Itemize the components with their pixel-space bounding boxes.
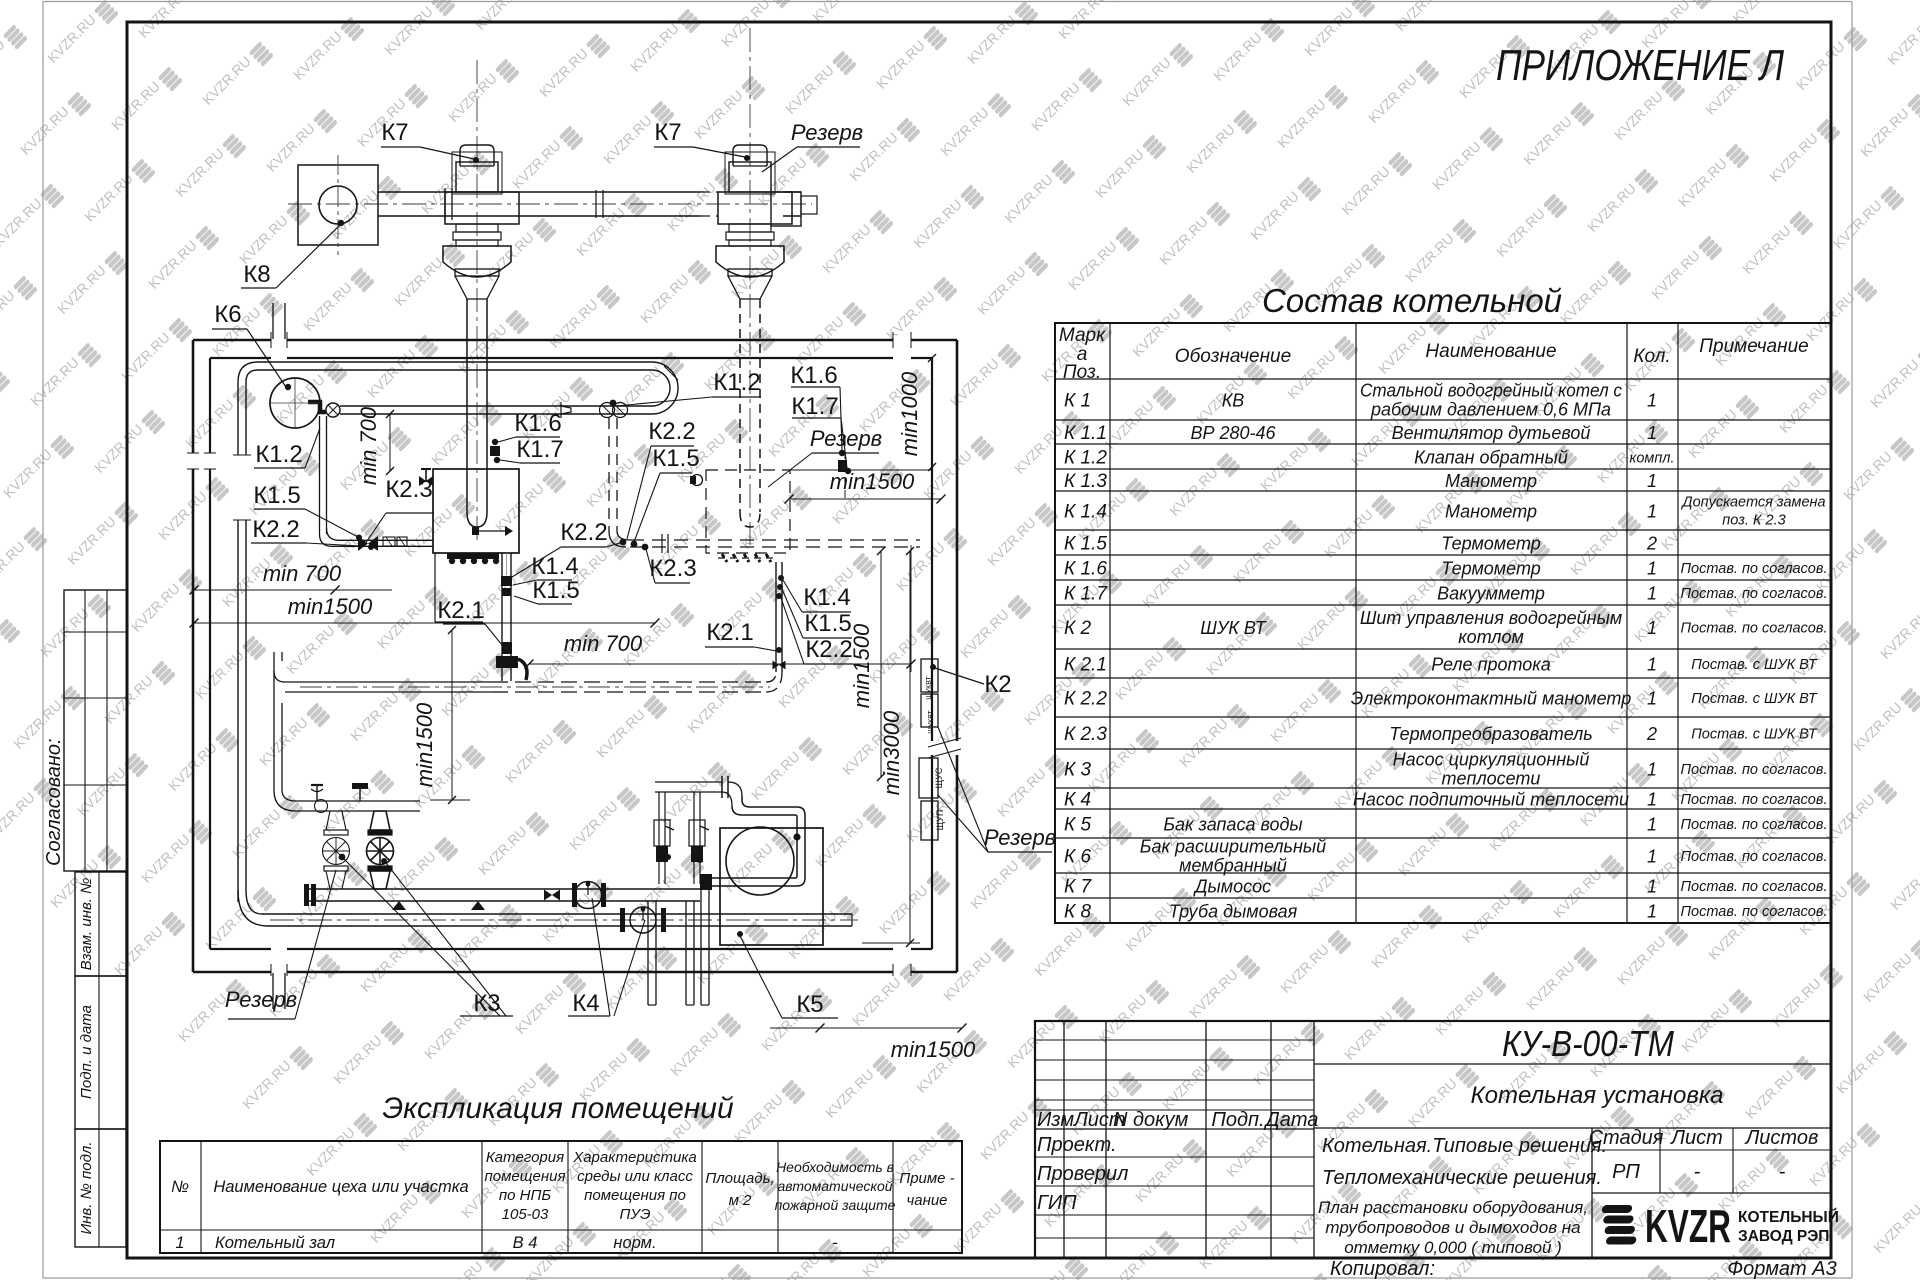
svg-text:К2: К2	[984, 671, 1011, 698]
svg-text:КВ: КВ	[1222, 391, 1245, 411]
svg-text:Постав. с ШУК ВТ: Постав. с ШУК ВТ	[1691, 727, 1818, 743]
svg-text:Клапан обратный: Клапан обратный	[1414, 448, 1568, 468]
svg-text:Формат А3: Формат А3	[1727, 1258, 1836, 1280]
svg-text:1: 1	[1647, 391, 1657, 411]
svg-text:К1.7: К1.7	[791, 393, 838, 420]
svg-text:К7: К7	[654, 119, 681, 146]
svg-text:1: 1	[1647, 877, 1657, 897]
svg-text:Манометр: Манометр	[1445, 471, 1537, 491]
svg-text:К1.6: К1.6	[514, 410, 561, 437]
svg-text:Термопреобразователь: Термопреобразователь	[1389, 724, 1592, 744]
svg-text:Наименование: Наименование	[1425, 341, 1556, 362]
svg-text:пожарной защите: пожарной защите	[775, 1197, 896, 1213]
svg-text:Бак расширительный: Бак расширительный	[1140, 837, 1326, 857]
svg-text:105-03: 105-03	[502, 1206, 549, 1223]
svg-text:К1.4: К1.4	[531, 553, 578, 580]
svg-text:min1500: min1500	[849, 623, 874, 708]
svg-text:min1500: min1500	[412, 702, 437, 787]
svg-text:рабочим давлением 0,6 МПа: рабочим давлением 0,6 МПа	[1370, 400, 1611, 420]
svg-text:Электроконтактный манометр: Электроконтактный манометр	[1351, 689, 1631, 709]
svg-text:К1.5: К1.5	[253, 482, 300, 509]
svg-text:Постав. по согласов.: Постав. по согласов.	[1681, 904, 1828, 920]
svg-text:Постав. с ШУК ВТ: Постав. с ШУК ВТ	[1691, 691, 1818, 707]
svg-text:1: 1	[1647, 689, 1657, 709]
svg-text:Категория: Категория	[486, 1149, 564, 1166]
svg-text:К 8: К 8	[1064, 902, 1091, 923]
svg-text:помещения: помещения	[485, 1168, 566, 1185]
svg-text:План расстановки оборудования,: План расстановки оборудования,	[1318, 1198, 1588, 1217]
svg-text:автоматической: автоматической	[777, 1178, 892, 1194]
svg-text:компл.: компл.	[1629, 451, 1674, 467]
svg-text:min 700: min 700	[564, 631, 643, 656]
svg-text:по НПБ: по НПБ	[499, 1187, 551, 1204]
svg-text:Проверил: Проверил	[1037, 1163, 1128, 1185]
svg-text:К1.6: К1.6	[790, 362, 837, 389]
svg-text:ШУКВТ: ШУКВТ	[928, 710, 935, 734]
svg-text:Подп. и дата: Подп. и дата	[78, 1005, 95, 1099]
svg-text:Котельная.Типовые решения.: Котельная.Типовые решения.	[1322, 1135, 1607, 1157]
svg-text:Необходимость в: Необходимость в	[776, 1159, 894, 1175]
svg-text:Взам. инв. №: Взам. инв. №	[78, 878, 95, 971]
svg-text:К8: К8	[243, 261, 270, 288]
svg-text:Термометр: Термометр	[1441, 534, 1541, 554]
svg-text:Манометр: Манометр	[1445, 502, 1537, 522]
svg-text:Лист: Лист	[1669, 1127, 1723, 1149]
svg-text:среды или класс: среды или класс	[577, 1168, 693, 1185]
svg-text:Проект.: Проект.	[1037, 1134, 1117, 1156]
svg-text:ПУЭ: ПУЭ	[619, 1206, 650, 1223]
svg-text:норм.: норм.	[613, 1234, 656, 1252]
svg-text:Наименование цеха или участка: Наименование цеха или участка	[213, 1178, 468, 1196]
svg-text:Постав. по согласов.: Постав. по согласов.	[1681, 586, 1828, 602]
svg-text:помещения по: помещения по	[584, 1187, 686, 1204]
svg-text:Состав котельной: Состав котельной	[1262, 282, 1562, 319]
svg-text:Постав. по согласов.: Постав. по согласов.	[1681, 792, 1828, 808]
svg-text:КУ-В-00-ТМ: КУ-В-00-ТМ	[1502, 1023, 1674, 1064]
svg-text:Характеристика: Характеристика	[572, 1149, 697, 1166]
svg-text:Постав. по согласов.: Постав. по согласов.	[1681, 879, 1828, 895]
svg-text:К1.2: К1.2	[713, 369, 760, 396]
svg-text:-: -	[1694, 1161, 1701, 1183]
svg-text:К2.1: К2.1	[706, 619, 753, 646]
svg-text:К2.3: К2.3	[385, 476, 432, 503]
svg-text:К2.2: К2.2	[252, 516, 299, 543]
svg-text:ШУК ВТ: ШУК ВТ	[1200, 618, 1267, 638]
svg-text:К 1: К 1	[1064, 391, 1091, 412]
svg-text:№: №	[171, 1178, 189, 1196]
svg-text:Бак запаса воды: Бак запаса воды	[1163, 815, 1302, 835]
svg-text:Постав. по согласов.: Постав. по согласов.	[1681, 849, 1828, 865]
svg-text:К 2: К 2	[1064, 618, 1091, 639]
svg-text:К4: К4	[572, 990, 599, 1017]
svg-text:К1.4: К1.4	[803, 584, 850, 611]
svg-text:1: 1	[1647, 618, 1657, 638]
svg-text:Шит управления водогрейным: Шит управления водогрейным	[1360, 608, 1622, 628]
svg-text:Листов: Листов	[1744, 1127, 1819, 1149]
svg-text:1: 1	[1647, 584, 1657, 604]
svg-text:котлом: котлом	[1458, 627, 1524, 647]
svg-text:Постав. по согласов.: Постав. по согласов.	[1681, 817, 1828, 833]
svg-text:Резерв: Резерв	[984, 825, 1056, 850]
svg-text:Котельная установка: Котельная установка	[1470, 1082, 1723, 1109]
svg-text:К 1.1: К 1.1	[1064, 423, 1107, 444]
svg-text:Реле протока: Реле протока	[1431, 655, 1551, 675]
svg-text:Тепломеханические решения.: Тепломеханические решения.	[1322, 1167, 1602, 1189]
svg-text:Дымосос: Дымосос	[1193, 877, 1271, 897]
svg-text:В 4: В 4	[513, 1234, 538, 1252]
svg-text:min 700: min 700	[263, 561, 342, 586]
svg-text:трубопроводов и дымоходов на: трубопроводов и дымоходов на	[1325, 1218, 1580, 1237]
svg-text:1: 1	[1647, 790, 1657, 810]
svg-text:ЩУС: ЩУС	[934, 767, 944, 788]
svg-text:Примечание: Примечание	[1699, 336, 1808, 357]
svg-text:Резерв: Резерв	[810, 426, 882, 451]
svg-text:min1500: min1500	[891, 1037, 976, 1062]
svg-text:ПРИЛОЖЕНИЕ Л: ПРИЛОЖЕНИЕ Л	[1496, 41, 1785, 90]
svg-text:Экспликация помещений: Экспликация помещений	[382, 1092, 734, 1125]
svg-text:РП: РП	[1612, 1161, 1640, 1183]
svg-text:Копировал:: Копировал:	[1330, 1258, 1435, 1280]
svg-text:мембранный: мембранный	[1179, 856, 1287, 876]
svg-text:Вентилятор дутьевой: Вентилятор дутьевой	[1392, 423, 1591, 443]
svg-text:Постав. по согласов.: Постав. по согласов.	[1681, 762, 1828, 778]
svg-text:Резерв: Резерв	[225, 987, 297, 1012]
svg-text:К1.5: К1.5	[804, 610, 851, 637]
svg-text:Насос циркуляционный: Насос циркуляционный	[1393, 750, 1590, 770]
svg-text:КОТЕЛЬНЫЙ: КОТЕЛЬНЫЙ	[1738, 1208, 1839, 1226]
svg-text:Котельный зал: Котельный зал	[215, 1234, 335, 1252]
svg-text:2: 2	[1646, 724, 1657, 744]
svg-text:К 1.2: К 1.2	[1064, 448, 1107, 469]
svg-text:ВР 280-46: ВР 280-46	[1190, 423, 1276, 443]
svg-text:К2.2: К2.2	[648, 418, 695, 445]
svg-text:К 2.3: К 2.3	[1064, 724, 1107, 745]
svg-text:К1.2: К1.2	[255, 441, 302, 468]
svg-text:Марк: Марк	[1059, 325, 1106, 346]
svg-text:К 1.5: К 1.5	[1064, 534, 1107, 555]
svg-text:К1.5: К1.5	[532, 577, 579, 604]
svg-text:К2.2: К2.2	[805, 636, 852, 663]
svg-text:К1.7: К1.7	[516, 436, 563, 463]
svg-text:Площадь,: Площадь,	[705, 1170, 774, 1187]
svg-text:1: 1	[1647, 847, 1657, 867]
svg-text:К 1.4: К 1.4	[1064, 502, 1107, 523]
svg-text:Поз.: Поз.	[1063, 362, 1101, 383]
svg-text:ГИП: ГИП	[1037, 1192, 1077, 1214]
svg-text:KVZR: KVZR	[1645, 1200, 1731, 1252]
svg-text:Вакуумметр: Вакуумметр	[1437, 584, 1545, 604]
svg-text:Дата: Дата	[1264, 1109, 1319, 1131]
svg-text:поз. К 2.3: поз. К 2.3	[1722, 513, 1785, 529]
svg-text:ЩУП: ЩУП	[935, 810, 945, 831]
svg-text:К 1.6: К 1.6	[1064, 559, 1107, 580]
svg-text:К 4: К 4	[1064, 790, 1091, 811]
svg-text:К 6: К 6	[1064, 847, 1091, 868]
svg-text:1: 1	[1647, 760, 1657, 780]
svg-text:2: 2	[1646, 534, 1657, 554]
svg-text:-: -	[1779, 1161, 1786, 1183]
svg-text:1: 1	[1647, 471, 1657, 491]
svg-text:К7: К7	[381, 119, 408, 146]
svg-text:min1500: min1500	[830, 469, 915, 494]
svg-text:Постав. по согласов.: Постав. по согласов.	[1681, 561, 1828, 577]
svg-text:теплосети: теплосети	[1442, 769, 1541, 789]
svg-text:N докум: N докум	[1113, 1109, 1189, 1131]
svg-text:К6: К6	[214, 301, 241, 328]
svg-text:К 1.7: К 1.7	[1064, 584, 1108, 605]
svg-text:К1.5: К1.5	[652, 445, 699, 472]
svg-text:1: 1	[1647, 502, 1657, 522]
svg-text:1: 1	[1647, 423, 1657, 443]
svg-text:Труба дымовая: Труба дымовая	[1169, 902, 1298, 922]
svg-text:min1500: min1500	[288, 594, 373, 619]
svg-text:К 5: К 5	[1064, 815, 1091, 836]
svg-text:чание: чание	[906, 1192, 947, 1209]
svg-text:-: -	[832, 1234, 838, 1252]
svg-text:Стальной водогрейный котел с: Стальной водогрейный котел с	[1360, 381, 1622, 401]
svg-text:К 7: К 7	[1064, 877, 1092, 898]
svg-text:м 2: м 2	[729, 1192, 752, 1209]
svg-text:К2.2: К2.2	[560, 519, 607, 546]
svg-text:Постав. по согласов.: Постав. по согласов.	[1681, 621, 1828, 637]
svg-text:min1000: min1000	[897, 371, 922, 456]
svg-text:Допускается замена: Допускается замена	[1680, 495, 1825, 511]
svg-text:Подп.: Подп.	[1211, 1109, 1264, 1131]
svg-text:К 2.1: К 2.1	[1064, 655, 1107, 676]
svg-text:Кол.: Кол.	[1633, 346, 1670, 367]
svg-text:1: 1	[1647, 815, 1657, 835]
svg-text:ЗАВОД РЭП: ЗАВОД РЭП	[1738, 1228, 1829, 1245]
svg-text:Инв. № подл.: Инв. № подл.	[78, 1141, 95, 1234]
svg-text:min3000: min3000	[879, 710, 904, 795]
svg-text:Резерв: Резерв	[791, 120, 863, 145]
svg-text:Приме -: Приме -	[899, 1170, 954, 1187]
svg-text:К2.1: К2.1	[437, 597, 484, 624]
svg-text:Термометр: Термометр	[1441, 559, 1541, 579]
svg-text:1: 1	[1647, 902, 1657, 922]
svg-text:1: 1	[1647, 559, 1657, 579]
svg-text:1: 1	[1647, 655, 1657, 675]
svg-text:К2.3: К2.3	[649, 555, 696, 582]
svg-text:К 1.3: К 1.3	[1064, 471, 1107, 492]
svg-text:Насос подпиточный теплосети: Насос подпиточный теплосети	[1353, 790, 1629, 810]
svg-text:Обозначение: Обозначение	[1175, 346, 1291, 367]
svg-text:Согласовано:: Согласовано:	[43, 738, 65, 866]
svg-text:К 3: К 3	[1064, 760, 1091, 781]
svg-text:1: 1	[175, 1234, 184, 1252]
svg-text:К 2.2: К 2.2	[1064, 689, 1107, 710]
svg-text:отметку 0,000 ( типовой ): отметку 0,000 ( типовой )	[1344, 1238, 1562, 1257]
svg-text:ШУКВТ: ШУКВТ	[926, 676, 933, 700]
svg-text:Постав. с ШУК ВТ: Постав. с ШУК ВТ	[1691, 657, 1818, 673]
svg-text:min 700: min 700	[356, 406, 381, 485]
svg-text:К5: К5	[796, 991, 823, 1018]
